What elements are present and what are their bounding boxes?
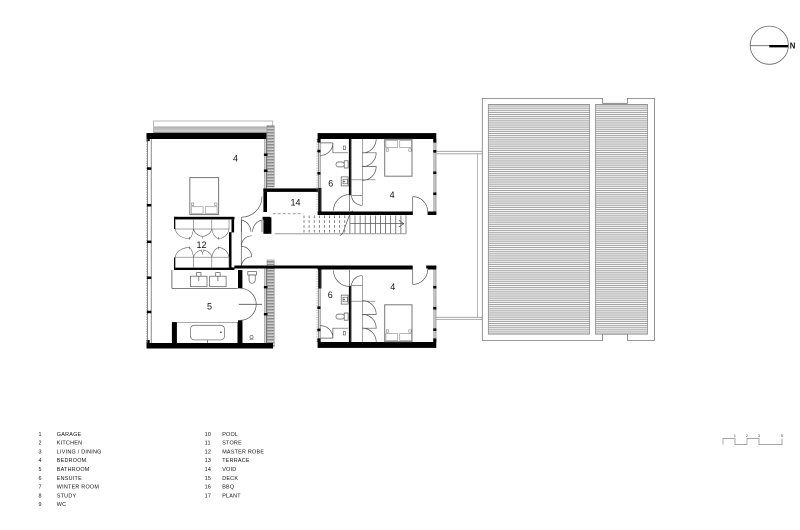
svg-text:12: 12 — [197, 240, 207, 250]
svg-text:2: 2 — [39, 441, 42, 447]
svg-text:10: 10 — [205, 432, 212, 438]
svg-text:16: 16 — [205, 485, 212, 491]
svg-text:TERRACE: TERRACE — [222, 458, 250, 464]
svg-text:4: 4 — [39, 458, 42, 464]
svg-text:4: 4 — [390, 190, 395, 200]
svg-text:STORE: STORE — [222, 441, 242, 447]
svg-text:14: 14 — [291, 198, 301, 208]
svg-text:STUDY: STUDY — [57, 493, 77, 499]
svg-text:6: 6 — [39, 476, 42, 482]
svg-text:14: 14 — [205, 467, 212, 473]
svg-text:MASTER ROBE: MASTER ROBE — [222, 449, 264, 455]
svg-text:5: 5 — [781, 434, 783, 438]
svg-text:6: 6 — [328, 179, 333, 189]
svg-text:4: 4 — [390, 282, 395, 292]
svg-text:ENSUITE: ENSUITE — [57, 476, 82, 482]
svg-text:LIVING / DINING: LIVING / DINING — [57, 449, 102, 455]
svg-text:17: 17 — [205, 493, 212, 499]
svg-text:13: 13 — [205, 458, 212, 464]
svg-text:WINTER ROOM: WINTER ROOM — [57, 485, 100, 491]
svg-text:GARAGE: GARAGE — [57, 432, 82, 438]
svg-text:3: 3 — [39, 449, 42, 455]
svg-text:1: 1 — [39, 432, 42, 438]
svg-text:5: 5 — [207, 302, 212, 312]
svg-text:2: 2 — [746, 434, 748, 438]
svg-text:VOID: VOID — [222, 467, 236, 473]
svg-text:5: 5 — [39, 467, 42, 473]
svg-text:N: N — [790, 41, 796, 50]
svg-text:8: 8 — [39, 493, 42, 499]
svg-text:DECK: DECK — [222, 476, 238, 482]
svg-text:BEDROOM: BEDROOM — [57, 458, 87, 464]
svg-text:6: 6 — [328, 290, 333, 300]
svg-text:1: 1 — [734, 434, 736, 438]
svg-text:WC: WC — [57, 502, 66, 508]
svg-text:BATHROOM: BATHROOM — [57, 467, 90, 473]
svg-text:4: 4 — [233, 154, 238, 164]
svg-text:BBQ: BBQ — [222, 485, 234, 491]
svg-text:7: 7 — [39, 485, 42, 491]
svg-text:12: 12 — [205, 449, 212, 455]
svg-text:11: 11 — [205, 441, 211, 447]
svg-text:PLANT: PLANT — [222, 493, 241, 499]
svg-text:15: 15 — [205, 476, 212, 482]
svg-text:3: 3 — [758, 434, 760, 438]
svg-text:POOL: POOL — [222, 432, 238, 438]
svg-text:9: 9 — [39, 502, 42, 508]
svg-text:KITCHEN: KITCHEN — [57, 441, 82, 447]
